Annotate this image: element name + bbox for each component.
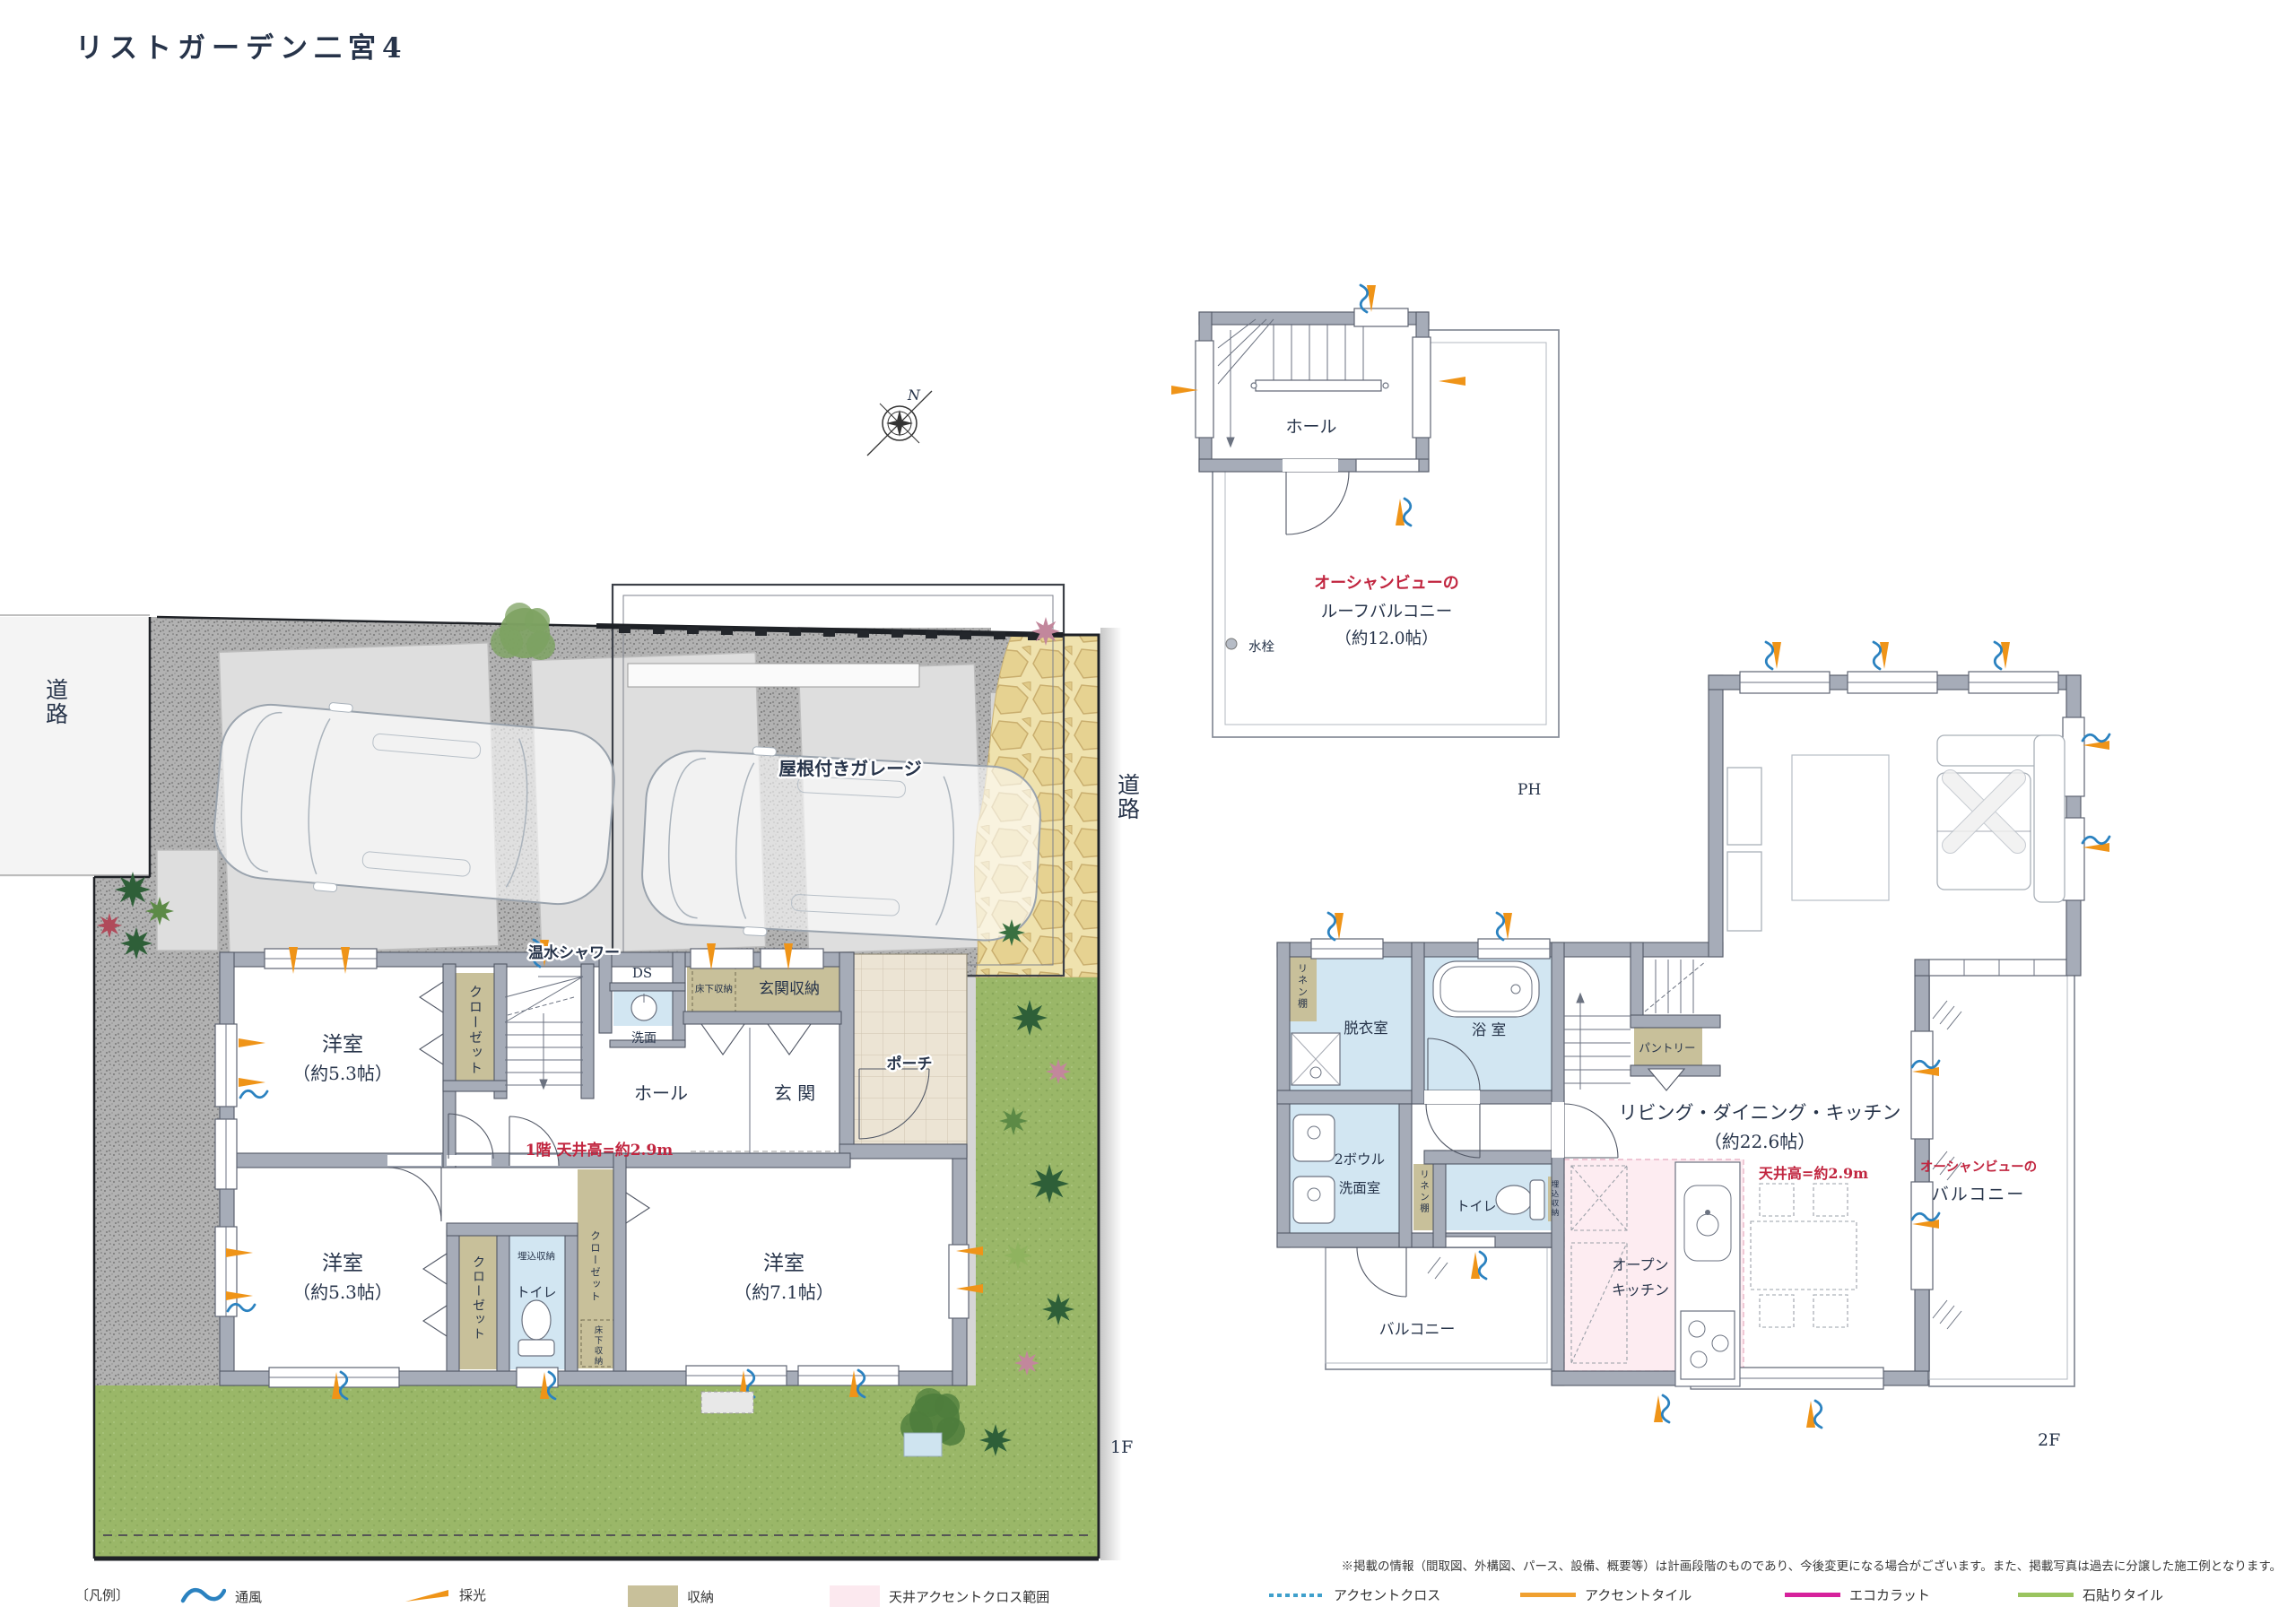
legend-item-accent-cloth: アクセントクロス [1269,1585,1440,1604]
stone-tile-icon [2018,1593,2074,1597]
road-left-label: 道路 [43,678,69,726]
accent-tile-icon [1520,1593,1576,1597]
dressing-label: 脱衣室 [1344,1020,1388,1037]
ecocarat-icon [1785,1593,1840,1597]
open-kitchen-label-1: オープン [1612,1256,1668,1273]
living-furniture [1727,735,2065,931]
underfloor2-label: 床下収納 [593,1324,604,1367]
ph-ocean-view-label: オーシャンビューの [1314,574,1459,593]
washbasin-label: 洗面 [631,1031,657,1046]
ceiling-note-2f: 天井高=約2.9m [1759,1165,1868,1182]
room-bed3-size: （約7.1帖） [734,1281,834,1303]
underfloor1-label: 床下収納 [695,983,733,994]
road-left-area [0,617,150,877]
accent-cloth-icon [1269,1594,1325,1597]
hall-label: ホール [634,1082,688,1104]
pantry-label: パントリー [1639,1041,1695,1055]
toilet-2f-label: トイレ [1456,1198,1496,1214]
linen1-label: リネン棚 [1297,963,1309,1010]
garage-label: 屋根付きガレージ [778,758,922,779]
road-right-label: 道路 [1115,773,1141,821]
plan-1f-drawing: N 道路 道路 屋根付きガレージ 温水シャワー 洋室 （約5.3帖） クローゼッ… [0,251,1193,1578]
ldk-size: （約22.6帖） [1704,1131,1816,1152]
toilet-1f-label: トイレ [516,1284,556,1300]
open-kitchen-label-2: キッチン [1612,1281,1669,1298]
floorplan-page: リストガーデン二宮4 [0,0,2296,1624]
dining-set [1751,1184,1857,1327]
legend-item-stone-tile: 石貼りタイル [2018,1585,2163,1604]
daylight-icon [404,1586,450,1604]
shower-label: 温水シャワー [528,943,620,962]
compass-icon [867,391,932,456]
ldk-label: リビング・ダイニング・キッチン [1619,1102,1901,1124]
storage-swatch [628,1585,678,1607]
porch-label: ポーチ [887,1055,933,1073]
plan-2f-drawing: リネン棚 脱衣室 浴 室 パントリー 2ボウル 洗面室 リネン棚 トイレ 埋込収… [1260,628,2157,1489]
builtin-storage-1f-label: 埋込収納 [517,1250,555,1262]
ocean-balcony-label: バルコニー [1932,1185,2026,1204]
ocean-view-2f-label: オーシャンビューの [1920,1159,2037,1175]
legend-item-vent: 通風 [179,1585,262,1607]
legend-item-storage: 収納 [628,1585,714,1607]
legend-item-daylight: 採光 [404,1585,486,1604]
closet1-label: クローゼット [467,985,483,1076]
ceiling-note-1f: 1階 天井高=約2.9m [526,1141,674,1159]
floor-label-1f: 1F [1110,1437,1133,1457]
room-bed2-name: 洋室 [322,1252,363,1275]
roof-balcony-label: ルーフバルコニー [1321,603,1453,621]
bath-label: 浴 室 [1472,1021,1506,1038]
room-bed2-size: （約5.3帖） [292,1281,393,1303]
entrance-storage-label: 玄関収納 [759,980,820,998]
entrance-label: 玄 関 [774,1082,815,1104]
ceiling-accent-swatch [830,1585,880,1607]
vent-icon [179,1585,226,1607]
ds-label: DS [632,965,652,981]
balcony-left-label: バルコニー [1379,1321,1456,1339]
disclaimer: ※掲載の情報（間取図、外構図、パース、設備、概要等）は計画段階のものであり、今後… [1302,1556,2282,1574]
closet2-label: クローゼット [471,1255,485,1342]
road-right-area [1100,628,1122,1560]
floor-label-2f: 2F [2038,1430,2060,1450]
faucet-dot [1226,638,1237,649]
room-bed1-size: （約5.3帖） [292,1063,393,1084]
legend-heading: 〔凡例〕 [75,1585,129,1604]
legend-item-ceiling-accent: 天井アクセントクロス範囲 [830,1585,1049,1607]
washroom-label-1: 2ボウル [1335,1151,1385,1168]
legend-item-ecocarat: エコカラット [1785,1585,1930,1604]
closet3-label: クローゼット [589,1230,602,1303]
linen2-label: リネン棚 [1419,1169,1430,1214]
legend-item-accent-tile: アクセントタイル [1520,1585,1692,1604]
garage-beam [628,664,919,687]
legend-heading-label: 〔凡例〕 [75,1585,129,1604]
page-title: リストガーデン二宮4 [75,25,408,65]
room-bed3-name: 洋室 [763,1252,804,1275]
room-bed1-name: 洋室 [322,1033,363,1056]
ph-hall-label: ホール [1285,417,1336,437]
builtin-storage-2f-label: 埋込収納 [1550,1179,1559,1218]
compass-north-label: N [907,386,921,404]
washroom-label-2: 洗面室 [1339,1180,1381,1196]
balcony-left-area [1326,1247,1553,1369]
